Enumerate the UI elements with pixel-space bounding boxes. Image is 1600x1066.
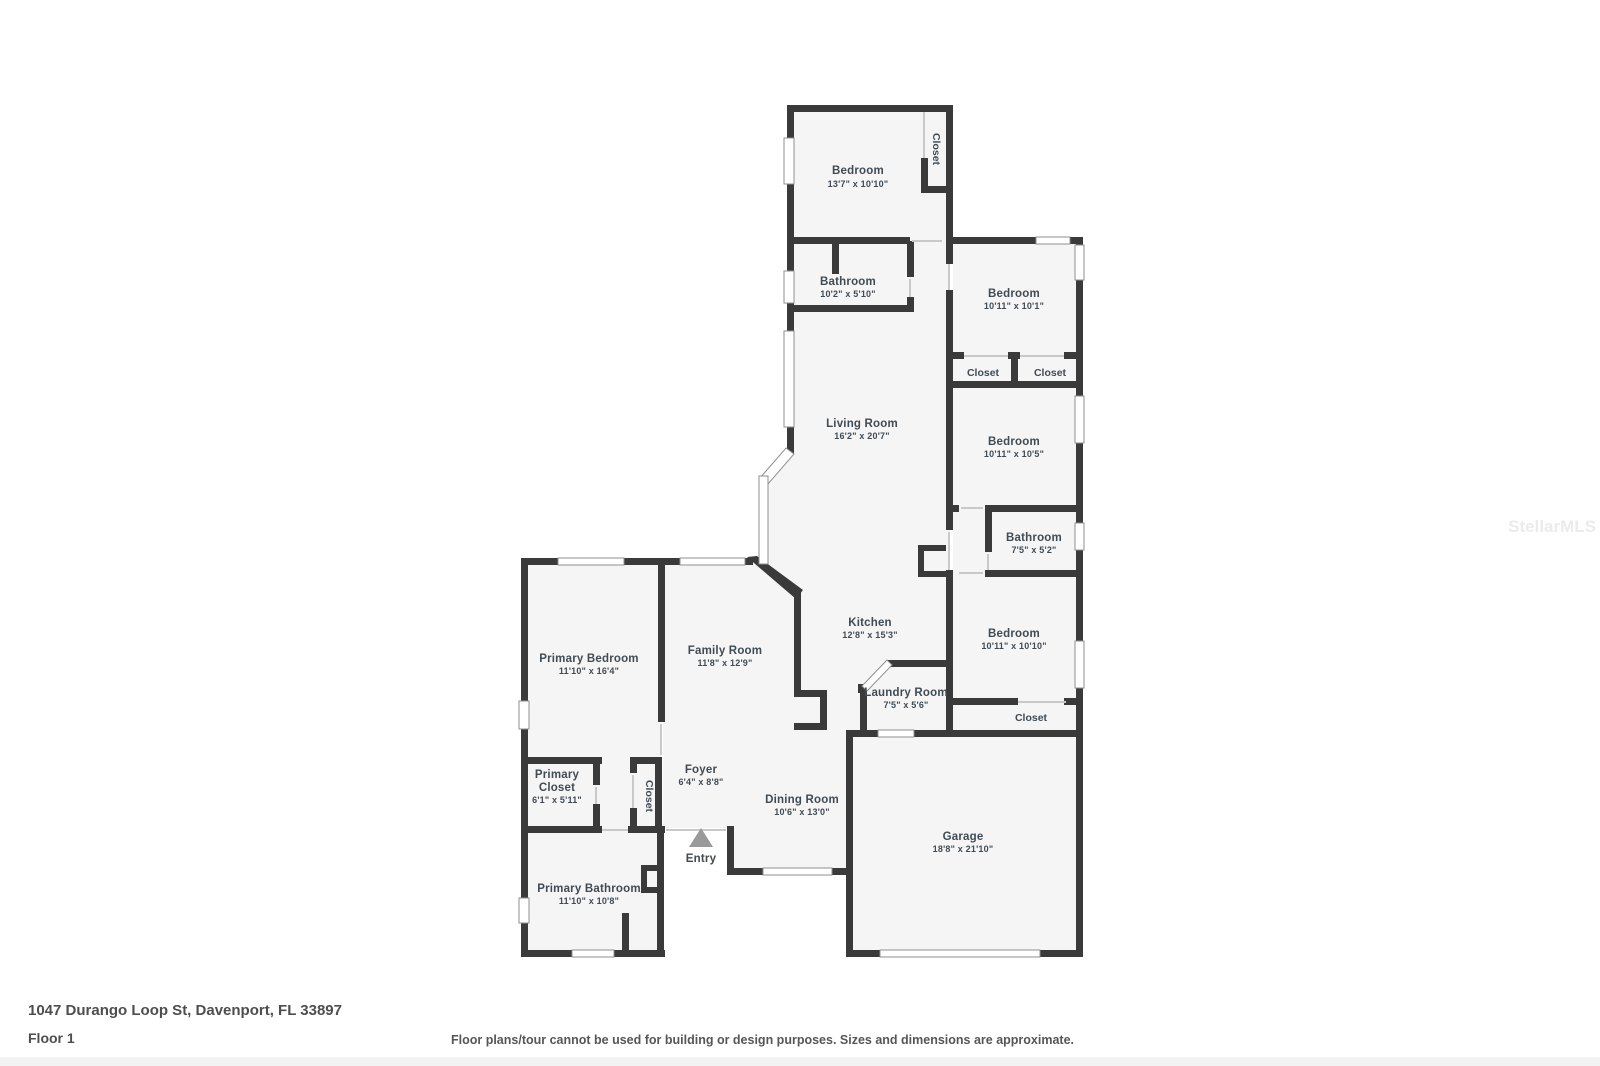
room-dims-laundry: 7'5" x 5'6"	[883, 700, 928, 710]
floor-plan: Bedroom 13'7" x 10'10" Closet Bathroom 1…	[0, 0, 1600, 1066]
room-label-dining: Dining Room	[765, 794, 839, 806]
window	[1075, 523, 1084, 550]
room-dims-foyer: 6'4" x 8'8"	[678, 777, 723, 787]
room-dims-bathroom-e: 7'5" x 5'2"	[1011, 545, 1056, 555]
room-label-bedroom-e: Bedroom	[988, 436, 1040, 448]
room-label-closet-top: Closet	[930, 133, 942, 166]
room-label-closet-right: Closet	[1034, 367, 1067, 379]
window	[558, 558, 624, 565]
room-label-bathroom-e: Bathroom	[1006, 532, 1062, 544]
window	[784, 271, 794, 303]
window	[519, 898, 529, 923]
room-label-primary-bedroom: Primary Bedroom	[539, 653, 639, 665]
room-label-primary-bathroom: Primary Bathroom	[537, 883, 641, 895]
patio-door	[763, 868, 832, 875]
room-label-garage: Garage	[943, 831, 984, 843]
entry-label: Entry	[686, 853, 717, 865]
room-dims-primary-closet: 6'1" x 5'11"	[532, 795, 582, 805]
disclaimer-text: Floor plans/tour cannot be used for buil…	[0, 1033, 1525, 1047]
room-label-closet-foyer: Closet	[643, 780, 655, 813]
window	[1036, 237, 1070, 244]
room-label-bedroom-ne: Bedroom	[988, 288, 1040, 300]
room-label-primary-closet-1: Primary	[535, 769, 580, 781]
room-dims-living-room: 16'2" x 20'7"	[834, 431, 889, 441]
room-label-bathroom-top: Bathroom	[820, 276, 876, 288]
room-dims-bedroom-se: 10'11" x 10'10"	[981, 641, 1046, 651]
room-dims-family: 11'8" x 12'9"	[698, 658, 753, 668]
room-label-foyer: Foyer	[685, 764, 718, 776]
room-label-kitchen: Kitchen	[848, 617, 892, 629]
room-label-closet-left: Closet	[967, 367, 1000, 379]
room-dims-bedroom-ne: 10'11" x 10'1"	[984, 301, 1044, 311]
bottom-strip	[0, 1057, 1600, 1066]
room-dims-kitchen: 12'8" x 15'3"	[842, 630, 897, 640]
room-label-closet-se: Closet	[1015, 712, 1048, 724]
laundry-garage-door	[878, 730, 914, 737]
address-text: 1047 Durango Loop St, Davenport, FL 3389…	[28, 1002, 342, 1019]
room-label-bedroom-se: Bedroom	[988, 628, 1040, 640]
garage-door	[880, 950, 1040, 957]
window	[1075, 245, 1084, 280]
window	[680, 558, 745, 565]
room-dims-bedroom-e: 10'11" x 10'5"	[984, 449, 1044, 459]
room-dims-bathroom-top: 10'2" x 5'10"	[820, 289, 875, 299]
floor-fill	[525, 108, 1079, 953]
window	[1075, 396, 1084, 443]
room-dims-bedroom-top: 13'7" x 10'10"	[828, 179, 889, 189]
room-label-laundry: Laundry Room	[864, 687, 948, 699]
window	[1075, 641, 1084, 688]
room-label-primary-closet-2: Closet	[539, 782, 575, 794]
bay-window	[759, 476, 768, 564]
room-label-family: Family Room	[688, 645, 762, 657]
window	[784, 331, 794, 427]
window	[784, 138, 794, 184]
room-label-bedroom-top: Bedroom	[832, 165, 884, 177]
room-dims-primary-bedroom: 11'10" x 16'4"	[559, 666, 619, 676]
window	[519, 701, 529, 729]
watermark-text: StellarMLS	[1508, 517, 1596, 537]
room-dims-primary-bathroom: 11'10" x 10'8"	[559, 896, 619, 906]
room-dims-garage: 18'8" x 21'10"	[933, 844, 994, 854]
floor-plan-page: Bedroom 13'7" x 10'10" Closet Bathroom 1…	[0, 0, 1600, 1066]
room-dims-dining: 10'6" x 13'0"	[774, 807, 829, 817]
window	[572, 950, 614, 957]
room-label-living-room: Living Room	[826, 418, 898, 430]
